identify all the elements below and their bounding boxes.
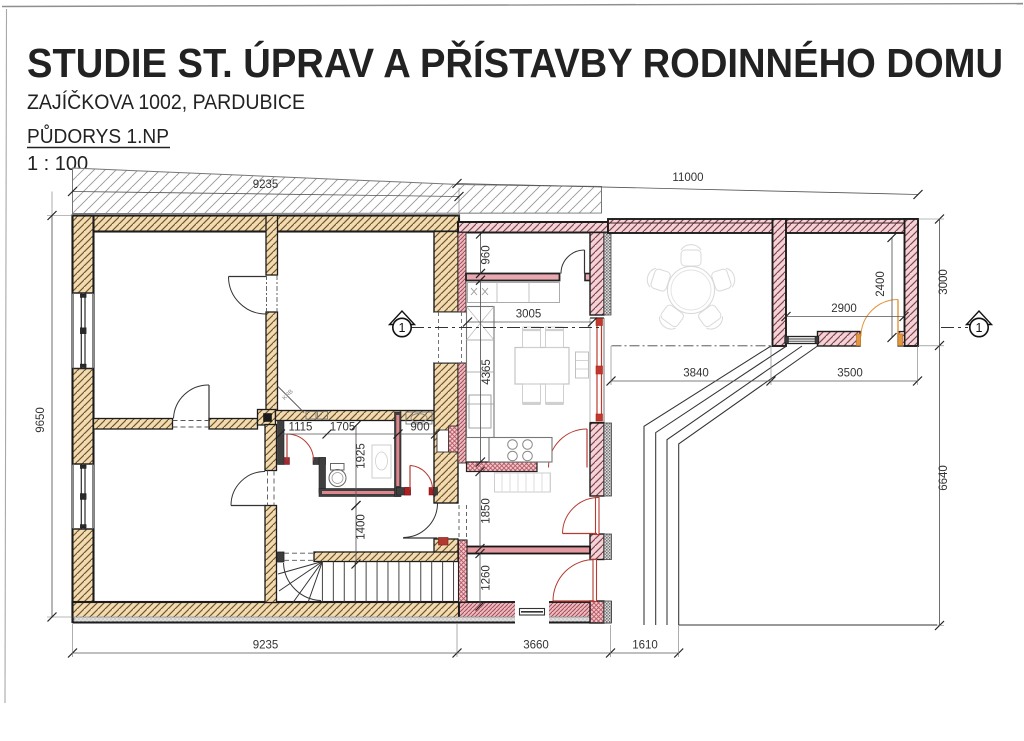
svg-text:1400: 1400 xyxy=(356,514,368,540)
svg-text:1115: 1115 xyxy=(289,422,313,434)
svg-text:1850: 1850 xyxy=(481,498,493,524)
svg-text:2900: 2900 xyxy=(831,303,857,315)
svg-text:2400: 2400 xyxy=(875,271,887,297)
svg-text:4365: 4365 xyxy=(481,359,493,385)
svg-text:3000: 3000 xyxy=(938,269,950,295)
svg-text:3005: 3005 xyxy=(516,309,542,321)
svg-text:11000: 11000 xyxy=(672,172,703,184)
svg-text:9650: 9650 xyxy=(35,407,47,433)
svg-text:1: 1 xyxy=(399,321,406,335)
svg-text:STUDIE ST. ÚPRAV A PŘÍSTAVBY R: STUDIE ST. ÚPRAV A PŘÍSTAVBY RODINNÉHO D… xyxy=(27,40,1003,86)
svg-text:1610: 1610 xyxy=(632,640,658,652)
svg-text:900: 900 xyxy=(410,422,429,434)
svg-text:PŮDORYS 1.NP: PŮDORYS 1.NP xyxy=(27,124,169,148)
svg-text:3840: 3840 xyxy=(683,368,709,380)
svg-text:6640: 6640 xyxy=(938,465,950,491)
svg-text:1705: 1705 xyxy=(330,422,356,434)
svg-text:1: 1 xyxy=(976,321,983,335)
svg-text:960: 960 xyxy=(481,245,493,264)
svg-text:1260: 1260 xyxy=(481,565,493,591)
svg-text:3660: 3660 xyxy=(523,640,549,652)
svg-text:3500: 3500 xyxy=(837,368,863,380)
svg-text:9235: 9235 xyxy=(253,179,279,191)
svg-text:9235: 9235 xyxy=(253,640,279,652)
svg-text:KRB: KRB xyxy=(282,389,295,402)
svg-text:ZAJÍČKOVA 1002, PARDUBICE: ZAJÍČKOVA 1002, PARDUBICE xyxy=(27,89,305,114)
svg-text:1925: 1925 xyxy=(356,443,368,469)
